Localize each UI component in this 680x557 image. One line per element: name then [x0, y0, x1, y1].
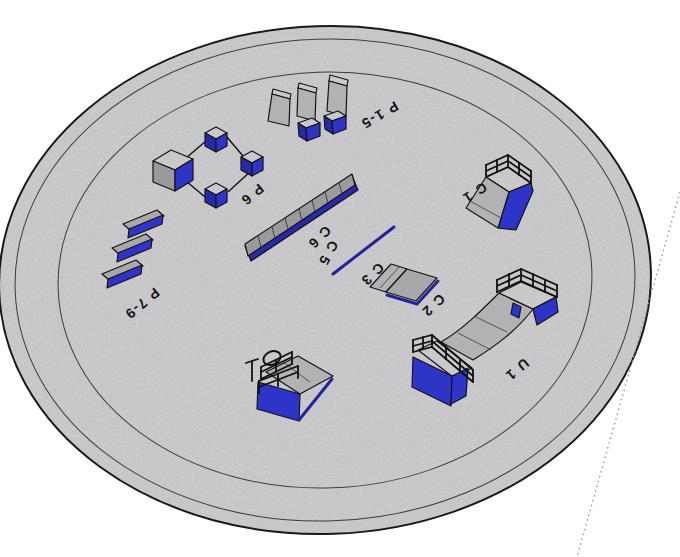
model-viewport[interactable]: P 1-5 P 6 P 7-9 C 6 C 5 C 3 C 2 C 1 U 1	[0, 0, 680, 557]
scene-canvas[interactable]: P 1-5 P 6 P 7-9 C 6 C 5 C 3 C 2 C 1 U 1	[0, 0, 680, 557]
pillar-face	[268, 94, 290, 126]
pillar-face	[297, 88, 316, 121]
